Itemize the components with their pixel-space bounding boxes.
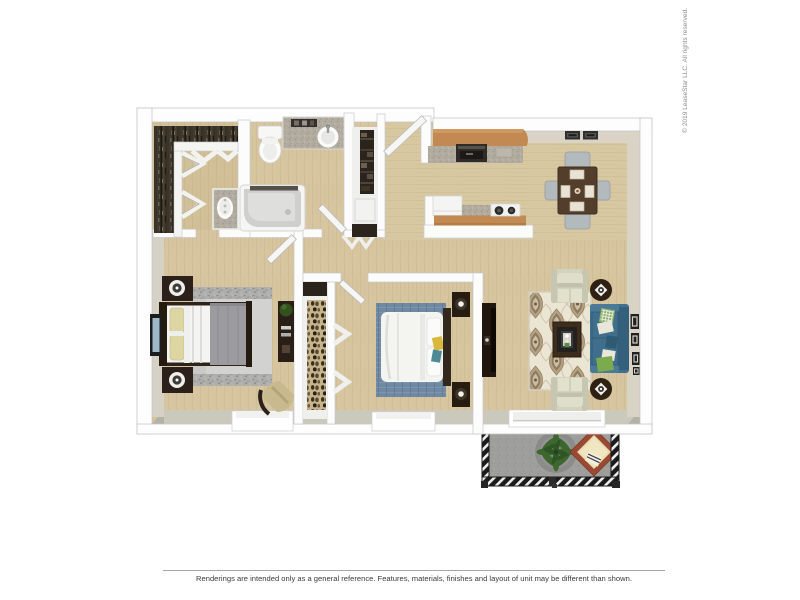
svg-text:Renderings are intended only a: Renderings are intended only as a genera… [196,574,632,583]
svg-text:© 2019 LeaseStar LLC. All righ: © 2019 LeaseStar LLC. All rights reserve… [681,8,689,133]
